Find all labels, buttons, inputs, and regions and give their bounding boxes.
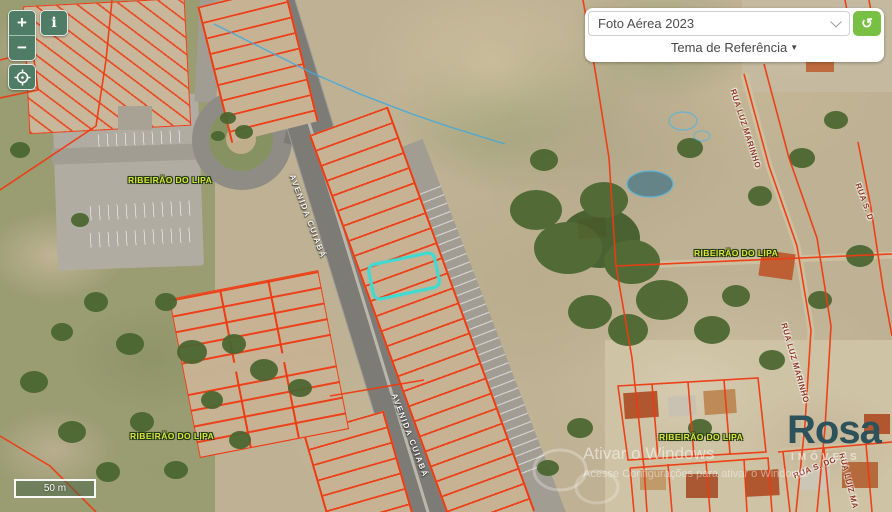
scale-bar: 50 m xyxy=(14,479,96,498)
scale-label: 50 m xyxy=(44,483,66,494)
reset-layer-button[interactable]: ↺ xyxy=(853,11,881,36)
map-viewport[interactable]: RIBEIRÃO DO LIPA RIBEIRÃO DO LIPA RIBEIR… xyxy=(0,0,892,512)
layer-select[interactable]: Foto Aérea 2023 xyxy=(588,11,850,36)
neighborhood-label: RIBEIRÃO DO LIPA xyxy=(128,175,212,185)
reference-theme-label: Tema de Referência xyxy=(671,40,787,55)
reset-icon: ↺ xyxy=(861,15,873,32)
layer-panel: Foto Aérea 2023 ↺ Tema de Referência ▼ xyxy=(585,8,884,62)
locate-button[interactable] xyxy=(8,64,36,90)
minus-icon: − xyxy=(17,38,27,58)
layer-select-value: Foto Aérea 2023 xyxy=(598,16,694,31)
windows-watermark-line2: Acesse Configurações para ativar o Windo… xyxy=(583,468,808,480)
caret-down-icon: ▼ xyxy=(790,43,798,52)
zoom-out-button[interactable]: − xyxy=(9,35,35,60)
parcel-block-bottom-left xyxy=(169,270,349,458)
zoom-control[interactable]: + − xyxy=(8,10,36,61)
rosa-logo: Rosa xyxy=(787,410,881,450)
crosshair-icon xyxy=(14,69,31,86)
rosa-logo-subtitle: IMÓVEIS xyxy=(791,452,861,463)
info-button[interactable]: i xyxy=(40,10,68,36)
plus-icon: + xyxy=(17,13,27,33)
neighborhood-label: RIBEIRÃO DO LIPA xyxy=(130,431,214,441)
zoom-in-button[interactable]: + xyxy=(9,11,35,35)
windows-watermark-line1: Ativar o Windows xyxy=(583,444,714,464)
chevron-down-icon xyxy=(830,16,841,27)
neighborhood-label: RIBEIRÃO DO LIPA xyxy=(659,432,743,442)
block-internal-road xyxy=(184,344,333,381)
reference-theme-button[interactable]: Tema de Referência ▼ xyxy=(588,36,881,59)
neighborhood-label: RIBEIRÃO DO LIPA xyxy=(694,248,778,258)
info-icon: i xyxy=(51,15,56,31)
layer-panel-row: Foto Aérea 2023 ↺ xyxy=(588,11,881,36)
